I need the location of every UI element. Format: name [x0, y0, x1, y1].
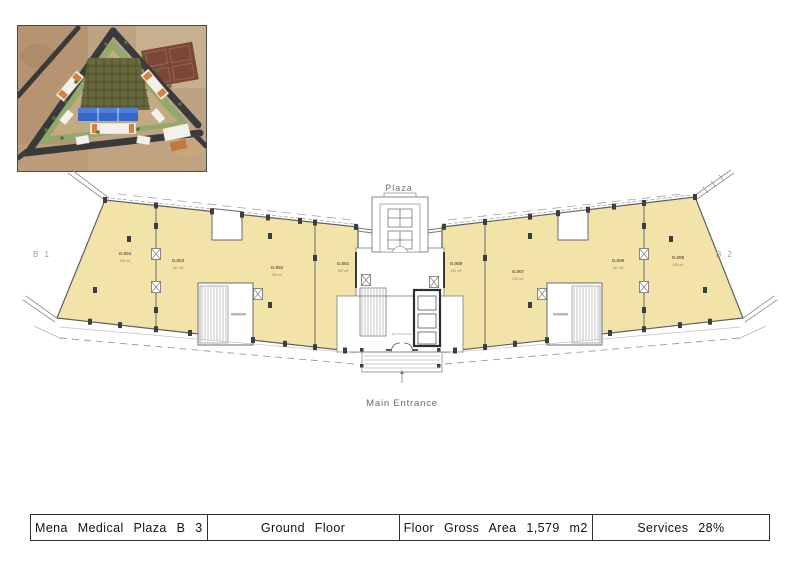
stair-core-right: [547, 283, 602, 345]
floor-name-cell: Ground Floor: [207, 515, 399, 540]
unit-id: G.001: [337, 261, 350, 266]
floor-name: Ground Floor: [261, 521, 345, 535]
plaza-label: Plaza: [385, 183, 413, 193]
floor-plan: Plaza Main Entrance ENTRANCE B 1 B 2 G.0…: [0, 0, 800, 566]
unit-area: 140 m2: [451, 269, 462, 273]
vestibule-right: [558, 210, 588, 240]
b1-label: B 1: [33, 250, 51, 259]
gross-area: Floor Gross Area 1,579 m2: [404, 521, 588, 535]
unit-id: G.002: [271, 265, 284, 270]
unit-id: G.005: [672, 255, 685, 260]
unit-id: G.004: [119, 251, 132, 256]
unit-id: G.007: [512, 269, 525, 274]
unit-id: G.003: [172, 258, 185, 263]
unit-area: 140 m2: [338, 269, 349, 273]
unit-id: G.008: [450, 261, 463, 266]
unit-id: G.006: [612, 258, 625, 263]
drawing-sheet: Plaza Main Entrance ENTRANCE B 1 B 2 G.0…: [0, 0, 800, 566]
project-title: Mena Medical Plaza B 3: [35, 521, 203, 535]
main-entrance-label: Main Entrance: [366, 398, 438, 409]
services-percentage: Services 28%: [637, 521, 724, 535]
unit-area: 161 m2: [613, 266, 624, 270]
b2-label: B 2: [716, 250, 734, 259]
unit-area: 230 m2: [513, 277, 524, 281]
elevator-bank: [414, 290, 440, 346]
title-block: Mena Medical Plaza B 3 Ground Floor Floo…: [30, 514, 770, 541]
entrance-steps: [362, 352, 442, 383]
unit-area: 161 m2: [173, 266, 184, 270]
services-cell: Services 28%: [592, 515, 769, 540]
unit-area: 208 m2: [120, 259, 131, 263]
gross-area-cell: Floor Gross Area 1,579 m2: [399, 515, 592, 540]
plaza-structure: [358, 193, 442, 252]
vestibule-left: [212, 209, 242, 241]
entrance-label: ENTRANCE: [392, 332, 413, 336]
project-title-cell: Mena Medical Plaza B 3: [31, 515, 207, 540]
unit-area: 208 m2: [673, 263, 684, 267]
stair-core-left: [198, 283, 253, 345]
unit-area: 230 m2: [272, 273, 283, 277]
